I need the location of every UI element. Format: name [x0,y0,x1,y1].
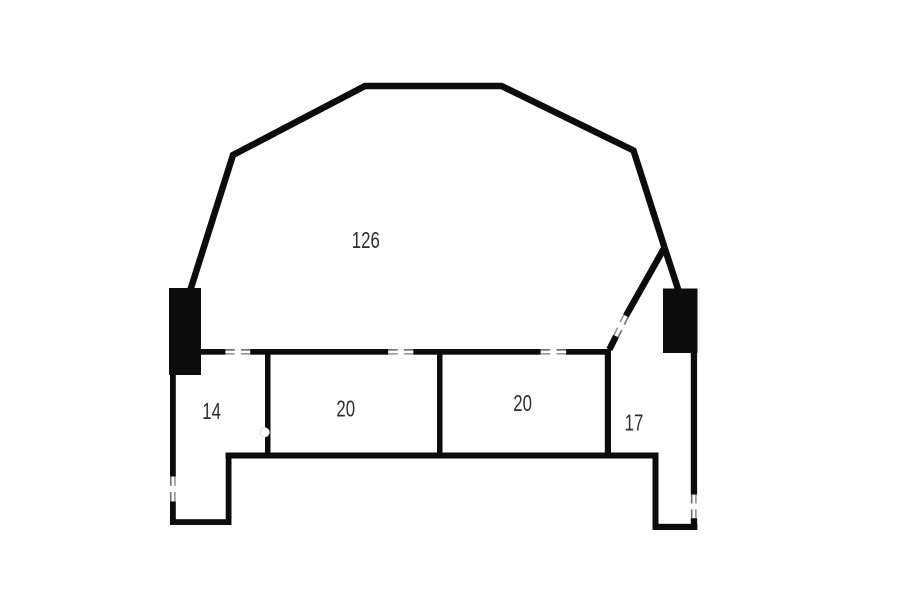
svg-text:20: 20 [336,397,355,422]
svg-text:126: 126 [352,229,380,254]
svg-text:17: 17 [625,411,644,436]
svg-text:14: 14 [202,400,221,425]
svg-text:20: 20 [513,392,532,417]
